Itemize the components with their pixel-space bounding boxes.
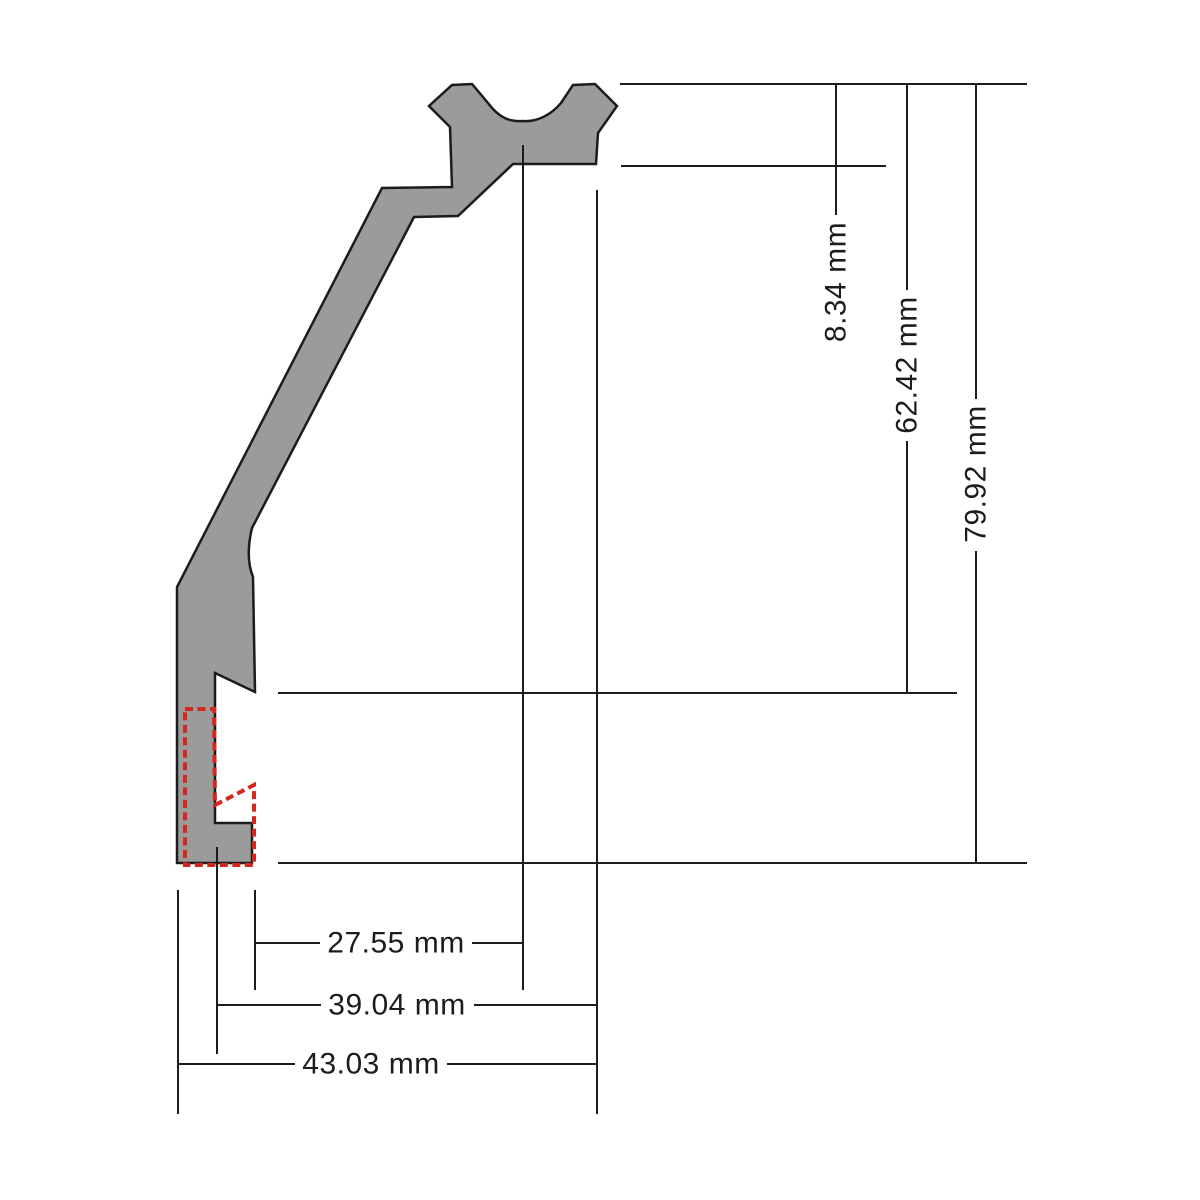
dimension-label-79-92: 79.92 mm <box>960 405 993 542</box>
dimension-label-62-42: 62.42 mm <box>891 296 924 433</box>
technical-drawing-canvas: 8.34 mm 62.42 mm 79.92 mm 27.55 mm 39.04… <box>0 0 1200 1200</box>
dimension-label-43-03: 43.03 mm <box>302 1048 439 1081</box>
dimension-label-39-04: 39.04 mm <box>328 989 465 1022</box>
part-cross-section-profile <box>177 84 617 863</box>
dimension-label-8-34: 8.34 mm <box>820 222 853 342</box>
cross-section-drawing: 8.34 mm 62.42 mm 79.92 mm 27.55 mm 39.04… <box>0 0 1200 1200</box>
dimension-label-27-55: 27.55 mm <box>327 927 464 960</box>
